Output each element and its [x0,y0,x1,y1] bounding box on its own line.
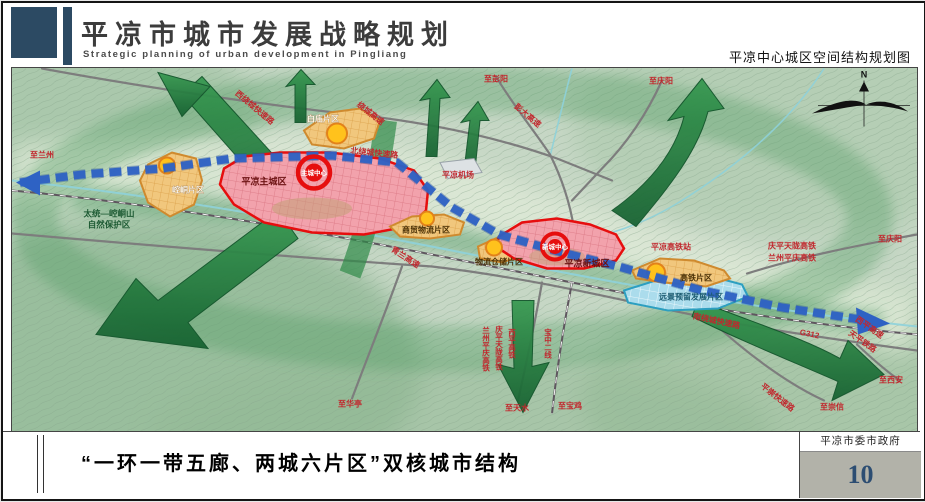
planning-map: 主城中心 新城中心 崆峒片区 白庙片区 平凉主城区 商贸物流片区 物流仓储片区 … [11,67,918,432]
label-to-pengyang: 至彭阳 [484,74,508,84]
label-rail-lzpq: 兰州平庆高铁 [768,253,816,263]
label-zone-warehouse: 物流仓储片区 [475,257,523,267]
label-airport: 平凉机场 [442,170,474,180]
label-nature-reserve-1: 太统—崆峒山 [82,209,134,219]
label-rail-lzpq-vertical: 兰州平庆高铁 [481,325,490,373]
compass-n-label: N [861,70,868,80]
label-rail-qptl: 庆平天陇高铁 [767,241,816,251]
page-title: 平凉市城市发展战略规划 [81,13,455,52]
map-canvas: 主城中心 新城中心 崆峒片区 白庙片区 平凉主城区 商贸物流片区 物流仓储片区 … [12,68,917,431]
label-to-baoji: 至宝鸡 [558,401,582,411]
center-trade [420,212,434,226]
footer-divider-lines [37,435,44,493]
plan-page: 平凉市城市发展战略规划 Strategic planning of urban … [1,1,925,501]
map-caption: 平凉中心城区空间结构规划图 [703,47,911,66]
label-to-qingyang-north: 至庆阳 [649,76,673,86]
label-nature-reserve-2: 自然保护区 [88,220,131,230]
organization-label: 平凉市委市政府 [800,432,921,452]
label-to-chongxin: 至崇信 [820,402,844,412]
label-rail-baozhong: 宝中二线 [543,327,552,360]
page-number: 10 [800,452,921,498]
page-subtitle: Strategic planning of urban development … [83,49,407,60]
label-to-qingyang-east: 至庆阳 [878,234,902,244]
label-rail-xiping-vertical: 西平高铁 [507,328,516,360]
center-baimiao [327,124,347,144]
label-zone-baimiao: 白庙片区 [307,114,339,124]
structure-slogan: “一环一带五廊、两城六片区”双核城市结构 [81,447,521,476]
label-hsr-station: 平凉高铁站 [651,242,691,252]
center-warehouse [486,240,502,256]
footer-right-box: 平凉市委市政府 10 [799,432,921,498]
logo-bar [63,7,72,65]
label-zone-main-city: 平凉主城区 [241,176,286,187]
label-to-xian: 至西安 [879,375,903,385]
label-zone-kongtong: 崆峒片区 [172,185,204,195]
label-rail-qptl-vertical: 庆平天陇高铁 [494,324,503,372]
label-to-tianshui: 至天水 [505,403,530,413]
label-to-lanzhou: 至兰州 [30,150,54,160]
label-zone-hsr: 高铁片区 [680,273,712,283]
label-zone-new-city: 平凉新城区 [564,258,609,269]
core-main-label: 主城中心 [301,168,328,177]
label-to-huating: 至华亭 [338,399,362,409]
core-new-label: 新城中心 [542,242,569,251]
logo-square [11,7,57,58]
label-zone-trade: 商贸物流片区 [402,225,450,235]
label-zone-reserve: 远景预留发展片区 [659,292,723,302]
footer: “一环一带五廊、两城六片区”双核城市结构 平凉市委市政府 10 [3,431,920,498]
